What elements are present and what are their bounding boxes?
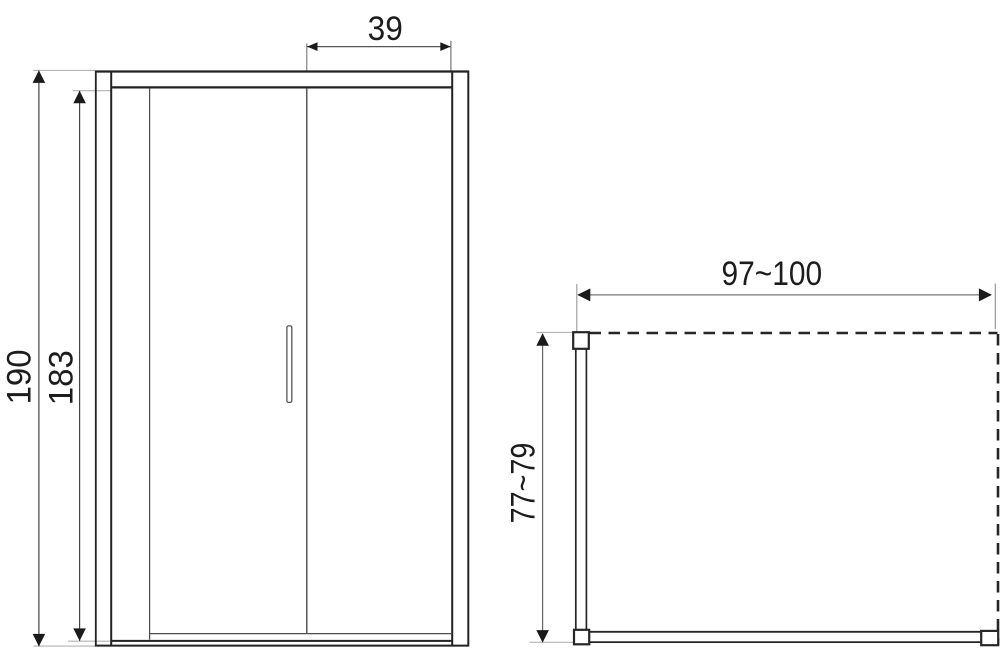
svg-text:39: 39 — [368, 9, 403, 47]
svg-text:190: 190 — [1, 349, 39, 404]
svg-text:183: 183 — [43, 350, 81, 405]
svg-text:77~79: 77~79 — [504, 443, 542, 524]
svg-text:97~100: 97~100 — [721, 254, 822, 292]
